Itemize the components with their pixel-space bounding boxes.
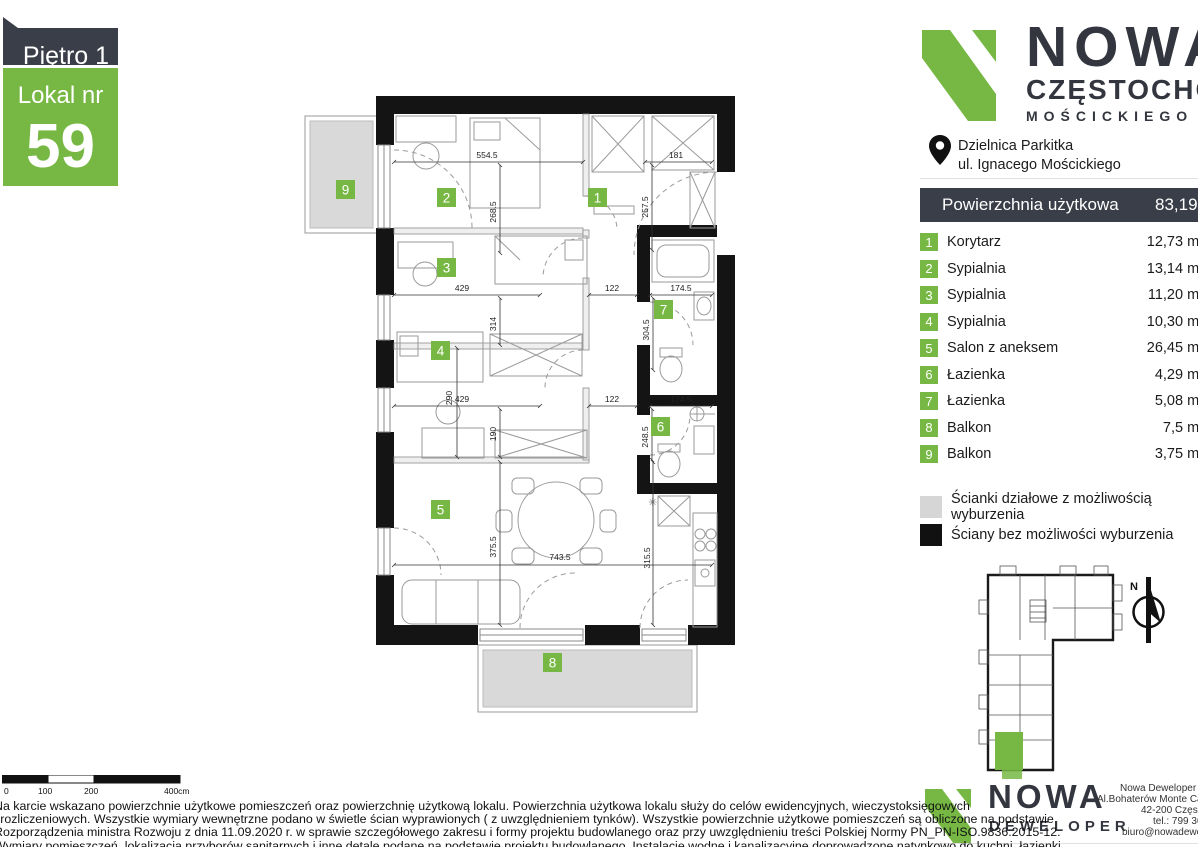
structural-label: Ściany bez możliwości wyburzenia xyxy=(951,527,1173,543)
room-name: Sypialnia xyxy=(947,287,1006,303)
floor-plan: ✳ 554.5181268.5257.5429122174.5314304.52… xyxy=(290,85,750,725)
room-badge-number: 2 xyxy=(443,191,451,206)
partition-label: Ścianki działowe z możliwością wyburzeni… xyxy=(951,491,1198,523)
scale-tick-label: 0 xyxy=(4,786,9,796)
room-name: Salon z aneksem xyxy=(947,340,1058,356)
dimension-label: 174.5 xyxy=(670,394,692,404)
room-badge-number: 8 xyxy=(549,656,557,671)
room-name: Balkon xyxy=(947,446,991,462)
room-number-badge: 2 xyxy=(920,260,938,278)
area-row: 6Łazienka4,29 m² xyxy=(920,362,1198,389)
dimension-label: 290 xyxy=(444,391,454,405)
legend-structural: Ściany bez możliwości wyburzenia xyxy=(920,524,1198,546)
contact-line: Al.Bohaterów Monte Cass xyxy=(1097,794,1198,805)
balcony-9 xyxy=(305,116,378,233)
divider xyxy=(920,178,1198,179)
unit-number: 59 xyxy=(3,116,118,178)
room-number-badge: 3 xyxy=(920,286,938,304)
partition-walls xyxy=(394,114,589,463)
room-number-badge: 8 xyxy=(920,419,938,437)
room-area: 13,14 m² xyxy=(1147,261,1198,277)
dimension-label: 268.5 xyxy=(488,201,498,223)
dimension-label: 174.5 xyxy=(670,283,692,293)
room-name: Korytarz xyxy=(947,234,1001,250)
scale-tick-label: 100 xyxy=(38,786,52,796)
room-name: Sypialnia xyxy=(947,314,1006,330)
area-row: 5Salon z aneksem26,45 m² xyxy=(920,335,1198,362)
room-badge-number: 5 xyxy=(437,503,445,518)
scale-tick-label: 400cm xyxy=(164,786,190,796)
room-area: 12,73 m² xyxy=(1147,234,1198,250)
brand-street: MOŚCICKIEGO xyxy=(1026,108,1193,124)
dimension-label: 257.5 xyxy=(640,196,650,218)
area-table-header: Powierzchnia użytkowa 83,19m² xyxy=(920,188,1198,222)
room-number-badge: 6 xyxy=(920,366,938,384)
dimension-label: 248.5 xyxy=(640,426,650,448)
disclaimer-line: Wymiary pomieszczeń, lokalizacja przybor… xyxy=(0,840,879,847)
north-label: N xyxy=(1130,581,1138,593)
brand-name: NOWA xyxy=(1026,14,1198,80)
structural-swatch xyxy=(920,524,942,546)
legend-partition: Ścianki działowe z możliwością wyburzeni… xyxy=(920,496,1198,518)
area-row: 2Sypialnia13,14 m² xyxy=(920,256,1198,283)
dimension-label: 429 xyxy=(455,394,469,404)
contact-line: tel.: 799 36 xyxy=(1153,816,1198,827)
dimension-label: 315.5 xyxy=(642,547,652,569)
brand-logo-icon xyxy=(920,18,998,122)
area-row: 7Łazienka5,08 m² xyxy=(920,388,1198,415)
scale-tick-label: 200 xyxy=(84,786,98,796)
room-badge-number: 9 xyxy=(342,183,350,198)
room-area: 11,20 m² xyxy=(1148,287,1198,303)
partition-swatch xyxy=(920,496,942,518)
disclaimer-line: Rozporządzenia ministra Rozwoju z dnia 1… xyxy=(0,826,879,839)
unit-badge: Lokal nr 59 xyxy=(3,68,118,186)
dimension-label: 122 xyxy=(605,394,619,404)
room-badge-number: 3 xyxy=(443,261,451,276)
room-number-badge: 9 xyxy=(920,445,938,463)
room-area: 4,29 m² xyxy=(1155,367,1198,383)
room-area: 26,45 m² xyxy=(1147,340,1198,356)
area-header-value: 83,19m² xyxy=(1155,195,1198,215)
room-number-badge: 4 xyxy=(920,313,938,331)
contact-line: 42-200 Często xyxy=(1141,805,1198,816)
room-area: 5,08 m² xyxy=(1155,393,1198,409)
contact-line: biuro@nowadewel xyxy=(1122,827,1198,838)
room-area: 10,30 m² xyxy=(1147,314,1198,330)
location-pin-icon xyxy=(928,134,952,166)
area-row: 8Balkon7,5 m² xyxy=(920,415,1198,442)
room-badge-number: 4 xyxy=(437,344,445,359)
room-name: Balkon xyxy=(947,420,991,436)
highlighted-unit xyxy=(995,732,1023,779)
dimension-label: 304.5 xyxy=(641,319,651,341)
dimension-label: 181 xyxy=(669,150,683,160)
dimension-label: 190 xyxy=(488,427,498,441)
wall-legend: Ścianki działowe z możliwością wyburzeni… xyxy=(920,496,1198,552)
structural-walls xyxy=(376,96,735,645)
disclaimer-text: Na karcie wskazano powierzchnie użytkowe… xyxy=(0,800,879,847)
area-row: 1Korytarz12,73 m² xyxy=(920,229,1198,256)
area-header-label: Powierzchnia użytkowa xyxy=(942,195,1119,215)
area-row: 9Balkon3,75 m² xyxy=(920,441,1198,468)
floorplan-sheet: Piętro 1 Lokal nr 59 xyxy=(0,0,1198,847)
balcony-8 xyxy=(478,645,697,712)
area-rows: 1Korytarz12,73 m²2Sypialnia13,14 m²3Sypi… xyxy=(920,229,1198,468)
building-key-plan: N xyxy=(970,565,1198,790)
dimension-label: 314 xyxy=(488,317,498,331)
room-badge-number: 1 xyxy=(594,191,602,206)
room-area: 3,75 m² xyxy=(1155,446,1198,462)
floor-ribbon: Piętro 1 xyxy=(0,15,120,66)
contact-line: Nowa Deweloper sp xyxy=(1120,783,1198,794)
dimension-label: 122 xyxy=(605,283,619,293)
room-name: Łazienka xyxy=(947,367,1005,383)
area-row: 3Sypialnia11,20 m² xyxy=(920,282,1198,309)
north-arrow: N xyxy=(1130,577,1163,643)
dimension-label: 554.5 xyxy=(476,150,498,160)
unit-label: Lokal nr xyxy=(3,82,118,110)
location-line2: ul. Ignacego Mościckiego xyxy=(958,156,1121,175)
area-row: 4Sypialnia10,30 m² xyxy=(920,309,1198,336)
footer-brand-name: NOWA xyxy=(988,778,1107,816)
location-text: Dzielnica Parkitka ul. Ignacego Mościcki… xyxy=(958,137,1121,175)
room-badge-number: 6 xyxy=(657,420,665,435)
brand-city: CZĘSTOCHOWA xyxy=(1026,74,1198,106)
dimension-label: 375.5 xyxy=(488,536,498,558)
dimension-label: 743.5 xyxy=(549,552,571,562)
dimension-label: 429 xyxy=(455,283,469,293)
location-line1: Dzielnica Parkitka xyxy=(958,137,1121,156)
room-badge-number: 7 xyxy=(660,303,668,318)
floor-label: Piętro 1 xyxy=(14,42,118,71)
room-number-badge: 7 xyxy=(920,392,938,410)
room-number-badge: 1 xyxy=(920,233,938,251)
room-name: Sypialnia xyxy=(947,261,1006,277)
room-name: Łazienka xyxy=(947,393,1005,409)
room-area: 7,5 m² xyxy=(1163,420,1198,436)
room-number-badge: 5 xyxy=(920,339,938,357)
